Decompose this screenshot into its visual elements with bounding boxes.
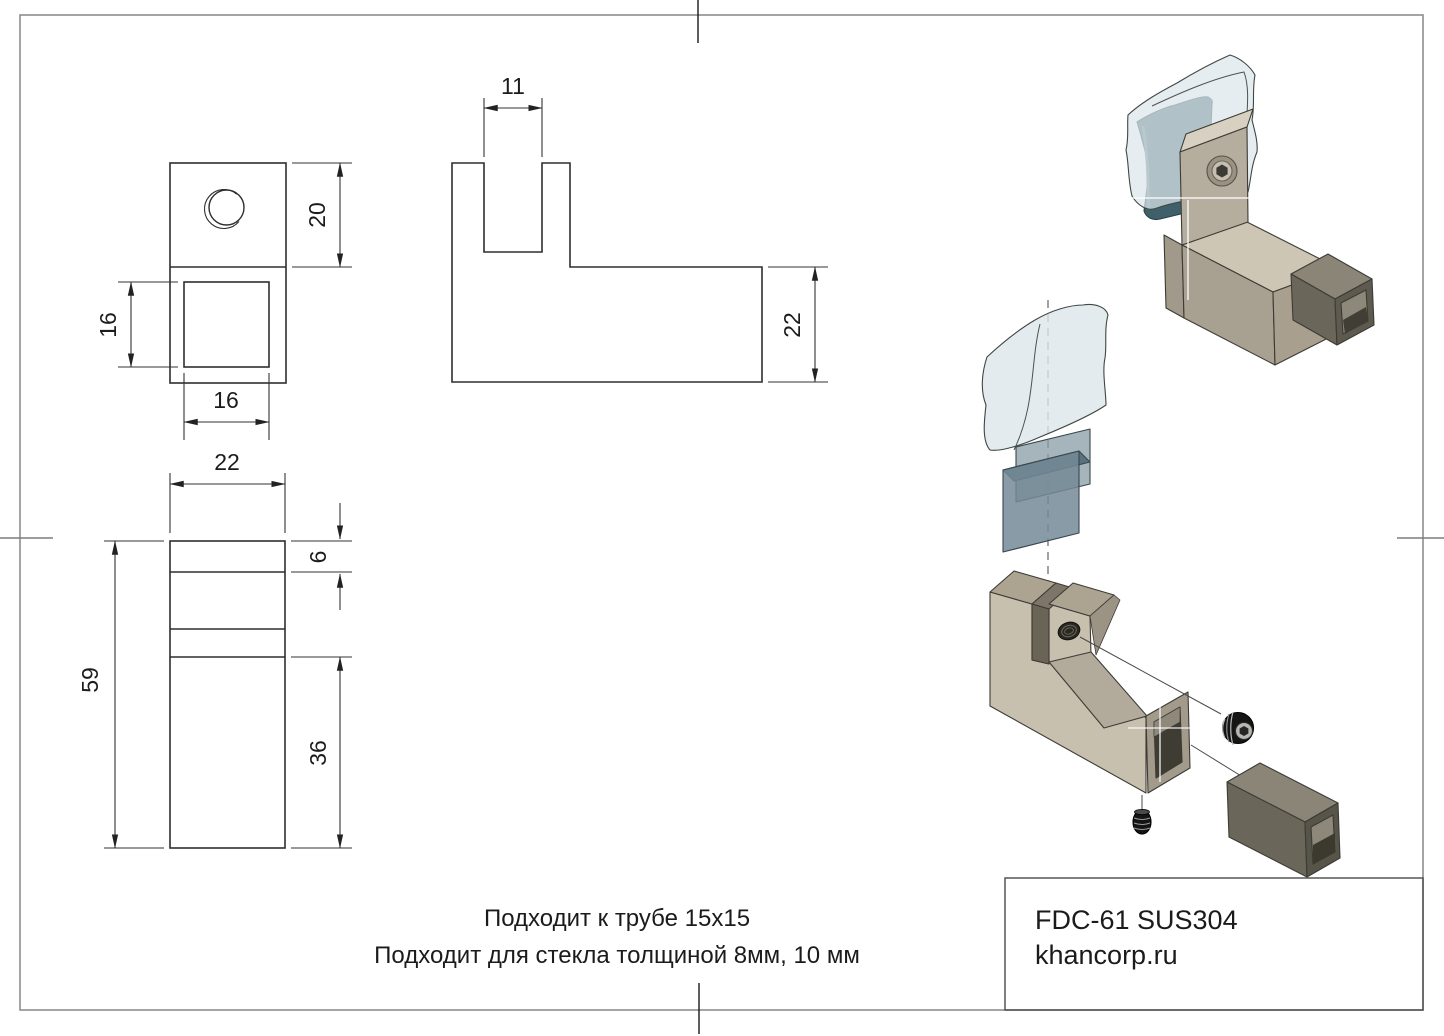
profile-view bbox=[170, 541, 285, 848]
dim-tube-hole-height: 16 bbox=[95, 312, 121, 338]
dim-total-height: 59 bbox=[77, 667, 103, 693]
clamp-slot-interior bbox=[1032, 604, 1049, 664]
note-glass-compatibility: Подходит для стекла толщиной 8мм, 10 мм bbox=[374, 942, 860, 970]
thread-arc bbox=[197, 182, 252, 237]
arm-left-face bbox=[1164, 235, 1184, 318]
screw-hole-circle bbox=[209, 190, 244, 225]
drawing-sheet: 20 16 16 22 11 22 59 6 36 bbox=[0, 0, 1444, 1036]
iso-assembled-view bbox=[1126, 55, 1374, 365]
grub-screw bbox=[1133, 809, 1151, 834]
gasket-front-wall bbox=[1003, 451, 1079, 552]
dim-top-cap: 6 bbox=[305, 551, 331, 564]
dim-plate-height: 20 bbox=[304, 202, 330, 228]
dimension-labels: 20 16 16 22 11 22 59 6 36 bbox=[77, 73, 805, 766]
iso-exploded-view bbox=[982, 300, 1340, 877]
title-block-model: FDC-61 SUS304 bbox=[1035, 905, 1238, 936]
dim-arm-height: 22 bbox=[779, 312, 805, 338]
dim-slot-width: 11 bbox=[501, 73, 525, 99]
note-tube-compatibility: Подходит к трубе 15x15 bbox=[484, 905, 750, 933]
dim-tube-hole-width: 16 bbox=[213, 387, 239, 413]
side-view bbox=[452, 163, 762, 382]
dimensions bbox=[104, 98, 828, 848]
dim-body-width: 22 bbox=[214, 449, 240, 475]
set-screw-exploded bbox=[1223, 712, 1254, 745]
leader-to-tube bbox=[1191, 745, 1246, 779]
title-block-website: khancorp.ru bbox=[1035, 940, 1178, 971]
dim-lower-section: 36 bbox=[305, 740, 331, 766]
drawing-canvas: 20 16 16 22 11 22 59 6 36 bbox=[0, 0, 1444, 1036]
glass-exploded bbox=[982, 304, 1108, 450]
front-view bbox=[170, 163, 286, 383]
